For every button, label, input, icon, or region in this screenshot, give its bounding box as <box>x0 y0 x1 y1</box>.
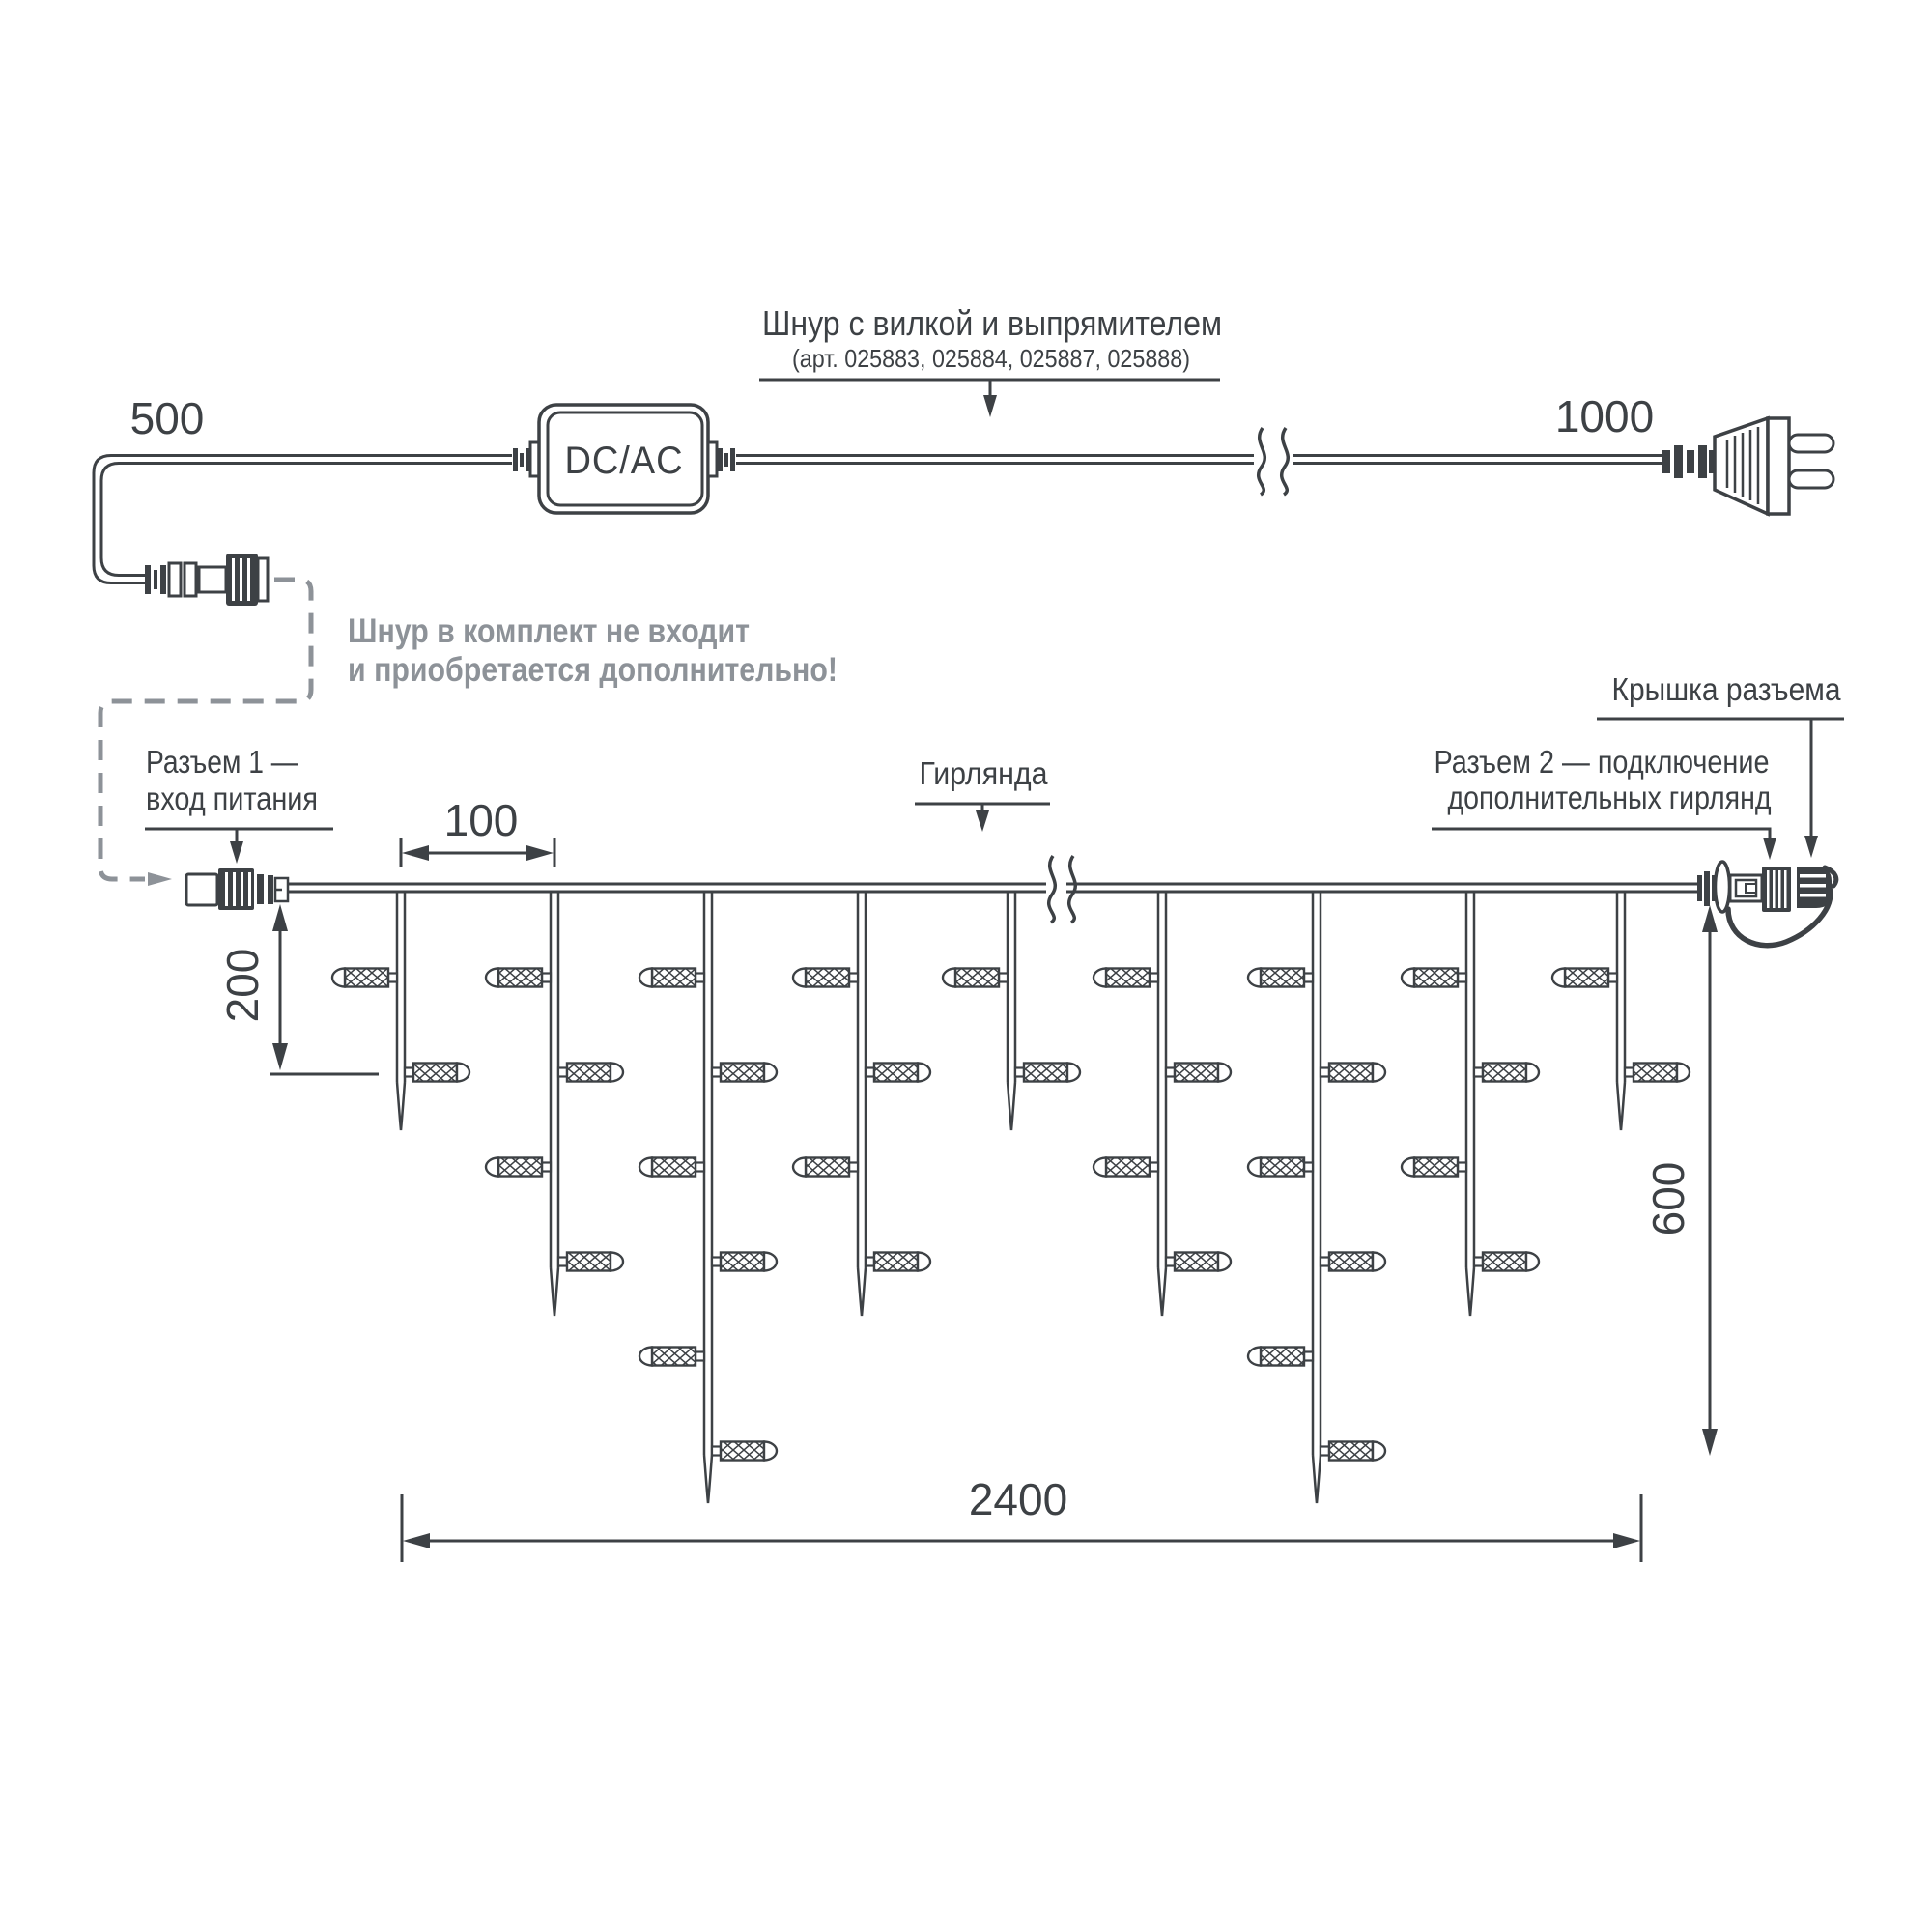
led-bulb-icon <box>1094 1158 1158 1177</box>
cord-label-line1: Шнур с вилкой и выпрямителем <box>762 303 1222 343</box>
dim-100-arrow-left-icon <box>402 845 429 861</box>
led-bulb-icon <box>712 1064 777 1082</box>
dim-600-arrow-down-icon <box>1702 1429 1718 1456</box>
dim-100-arrow-right-icon <box>526 845 554 861</box>
garland-wire <box>288 884 1698 892</box>
note-line2: и приобретается дополнительно! <box>348 651 838 689</box>
garland-label-text: Гирлянда <box>920 755 1049 791</box>
dim-100: 100 <box>401 795 554 867</box>
connector1-label-line1: Разъем 1 — <box>146 744 298 780</box>
note-line1: Шнур в комплект не входит <box>348 612 750 650</box>
led-bulb-icon <box>866 1253 930 1271</box>
connector2-arrow-icon <box>1763 838 1776 860</box>
dim-200-value: 200 <box>217 949 268 1023</box>
garland-drop <box>332 893 469 1130</box>
dim-2400: 2400 <box>402 1474 1641 1562</box>
garland-connector1 <box>186 868 288 910</box>
led-bulb-icon <box>1402 969 1466 987</box>
dim-2400-arrow-left-icon <box>403 1533 430 1548</box>
cap-label-text: Крышка разъема <box>1612 671 1842 707</box>
led-bulb-icon <box>712 1253 777 1271</box>
led-bulb-icon <box>1094 969 1158 987</box>
led-bulb-icon <box>1166 1064 1231 1082</box>
led-bulb-icon <box>793 1158 858 1177</box>
led-bulb-icon <box>1248 1348 1313 1366</box>
dim-200-arrow-up-icon <box>272 904 288 931</box>
garland-drop <box>793 893 930 1316</box>
connector1-arrow-icon <box>230 841 243 864</box>
led-bulb-icon <box>1248 969 1313 987</box>
connector2-leader-line <box>1432 829 1770 838</box>
dim-100-value: 100 <box>444 795 519 845</box>
dcac-converter-box: DC/AC <box>513 405 735 513</box>
led-bulb-icon <box>1474 1253 1539 1271</box>
led-bulb-icon <box>1625 1064 1690 1082</box>
connector2-label: Разъем 2 — подключение дополнительных ги… <box>1432 744 1776 860</box>
garland-label: Гирлянда <box>915 755 1050 832</box>
garland-wire-break-icon <box>1049 856 1076 923</box>
cable-break-icon <box>1259 428 1289 495</box>
cord-label: Шнур с вилкой и выпрямителем (арт. 02588… <box>759 303 1222 417</box>
dim-2400-arrow-right-icon <box>1613 1533 1640 1548</box>
garland-connector2 <box>1697 862 1836 946</box>
led-bulb-icon <box>1248 1158 1313 1177</box>
connector1-label-line2: вход питания <box>146 781 318 816</box>
led-bulb-icon <box>558 1064 623 1082</box>
garland-arrow-icon <box>976 810 989 832</box>
led-bulb-icon <box>486 1158 551 1177</box>
dim-600-arrow-up-icon <box>1702 905 1718 932</box>
garland-drop <box>1248 893 1385 1503</box>
connector1-label: Разъем 1 — вход питания <box>145 744 333 864</box>
connector2-label-line1: Разъем 2 — подключение <box>1435 744 1770 780</box>
cord-label-line2: (арт. 025883, 025884, 025887, 025888) <box>792 344 1190 373</box>
dim-600: 600 <box>1643 905 1718 1456</box>
dashed-path-arrow-icon <box>148 872 172 886</box>
garland-drop <box>1402 893 1539 1316</box>
garland-drop <box>943 893 1080 1130</box>
led-bulb-icon <box>793 969 858 987</box>
led-bulb-icon <box>1321 1064 1385 1082</box>
dim-2400-value: 2400 <box>969 1474 1067 1524</box>
garland-drop <box>1552 893 1690 1130</box>
dim-200: 200 <box>217 904 379 1074</box>
dim-200-arrow-down-icon <box>272 1043 288 1070</box>
connector2-label-line2: дополнительных гирлянд <box>1448 780 1772 815</box>
garland-drop <box>486 893 623 1316</box>
led-bulb-icon <box>405 1064 469 1082</box>
dashed-connection-path <box>100 580 311 879</box>
led-bulb-icon <box>712 1442 777 1461</box>
led-bulb-icon <box>1402 1158 1466 1177</box>
dim-1000-value: 1000 <box>1555 391 1654 441</box>
led-bulb-icon <box>639 969 704 987</box>
led-bulb-icon <box>1321 1253 1385 1271</box>
led-bulb-icon <box>943 969 1008 987</box>
dim-500-value: 500 <box>130 393 205 443</box>
cable-right-1000 <box>736 456 1662 464</box>
garland-drops <box>332 893 1690 1503</box>
cord-label-arrow-icon <box>983 395 997 417</box>
led-bulb-icon <box>866 1064 930 1082</box>
technical-diagram-page: Шнур с вилкой и выпрямителем (арт. 02588… <box>0 0 1932 1932</box>
led-bulb-icon <box>1015 1064 1080 1082</box>
garland-wiring-diagram: Шнур с вилкой и выпрямителем (арт. 02588… <box>0 0 1932 1932</box>
garland-drop <box>639 893 777 1503</box>
led-bulb-icon <box>486 969 551 987</box>
led-bulb-icon <box>639 1158 704 1177</box>
dim-600-value: 600 <box>1643 1162 1693 1236</box>
mains-plug <box>1662 418 1833 514</box>
led-bulb-icon <box>1552 969 1617 987</box>
dcac-label: DC/AC <box>565 440 684 482</box>
led-bulb-icon <box>1166 1253 1231 1271</box>
dc-output-connector <box>145 554 268 606</box>
not-included-note: Шнур в комплект не входит и приобретаетс… <box>348 612 838 689</box>
led-bulb-icon <box>1474 1064 1539 1082</box>
led-bulb-icon <box>332 969 397 987</box>
cap-arrow-icon <box>1804 836 1818 858</box>
led-bulb-icon <box>558 1253 623 1271</box>
garland-drop <box>1094 893 1231 1316</box>
led-bulb-icon <box>1321 1442 1385 1461</box>
led-bulb-icon <box>639 1348 704 1366</box>
cable-left-500 <box>94 456 512 583</box>
